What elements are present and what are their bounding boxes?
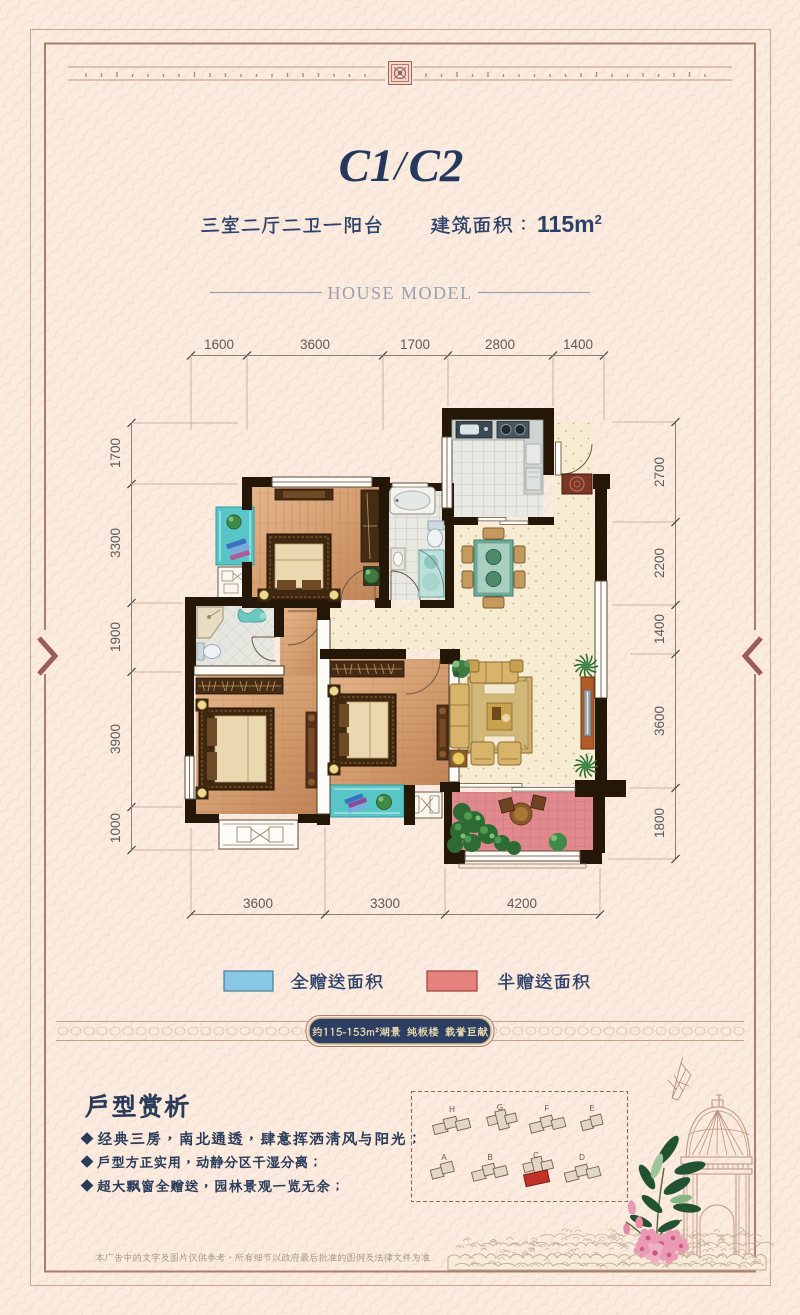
svg-text:1000: 1000 bbox=[108, 813, 123, 843]
svg-text:3600: 3600 bbox=[652, 706, 667, 736]
svg-text:3600: 3600 bbox=[243, 896, 273, 911]
svg-text:1400: 1400 bbox=[652, 614, 667, 644]
svg-text:2200: 2200 bbox=[652, 548, 667, 578]
svg-text:D: D bbox=[579, 1153, 585, 1162]
svg-text:C1: C1 bbox=[339, 140, 394, 192]
svg-text:C2: C2 bbox=[409, 140, 464, 192]
svg-text:3300: 3300 bbox=[370, 896, 400, 911]
svg-text:1900: 1900 bbox=[108, 622, 123, 652]
svg-text:3900: 3900 bbox=[108, 724, 123, 754]
svg-text:G: G bbox=[497, 1103, 503, 1112]
svg-text:1400: 1400 bbox=[563, 337, 593, 352]
svg-text:2700: 2700 bbox=[652, 457, 667, 487]
svg-text:1600: 1600 bbox=[204, 337, 234, 352]
svg-text:1700: 1700 bbox=[108, 438, 123, 468]
svg-text:115m2: 115m2 bbox=[537, 211, 602, 237]
svg-text:E: E bbox=[589, 1104, 594, 1113]
svg-text:2800: 2800 bbox=[485, 337, 515, 352]
svg-text:H: H bbox=[449, 1105, 455, 1114]
svg-text:A: A bbox=[441, 1153, 447, 1162]
svg-text:1700: 1700 bbox=[400, 337, 430, 352]
svg-text:1800: 1800 bbox=[652, 808, 667, 838]
svg-text:3600: 3600 bbox=[300, 337, 330, 352]
svg-text:B: B bbox=[487, 1153, 492, 1162]
svg-text:HOUSE MODEL: HOUSE MODEL bbox=[328, 283, 473, 303]
svg-text:C: C bbox=[533, 1151, 539, 1160]
svg-text:3300: 3300 bbox=[108, 528, 123, 558]
svg-text:4200: 4200 bbox=[507, 896, 537, 911]
svg-text:F: F bbox=[545, 1104, 550, 1113]
